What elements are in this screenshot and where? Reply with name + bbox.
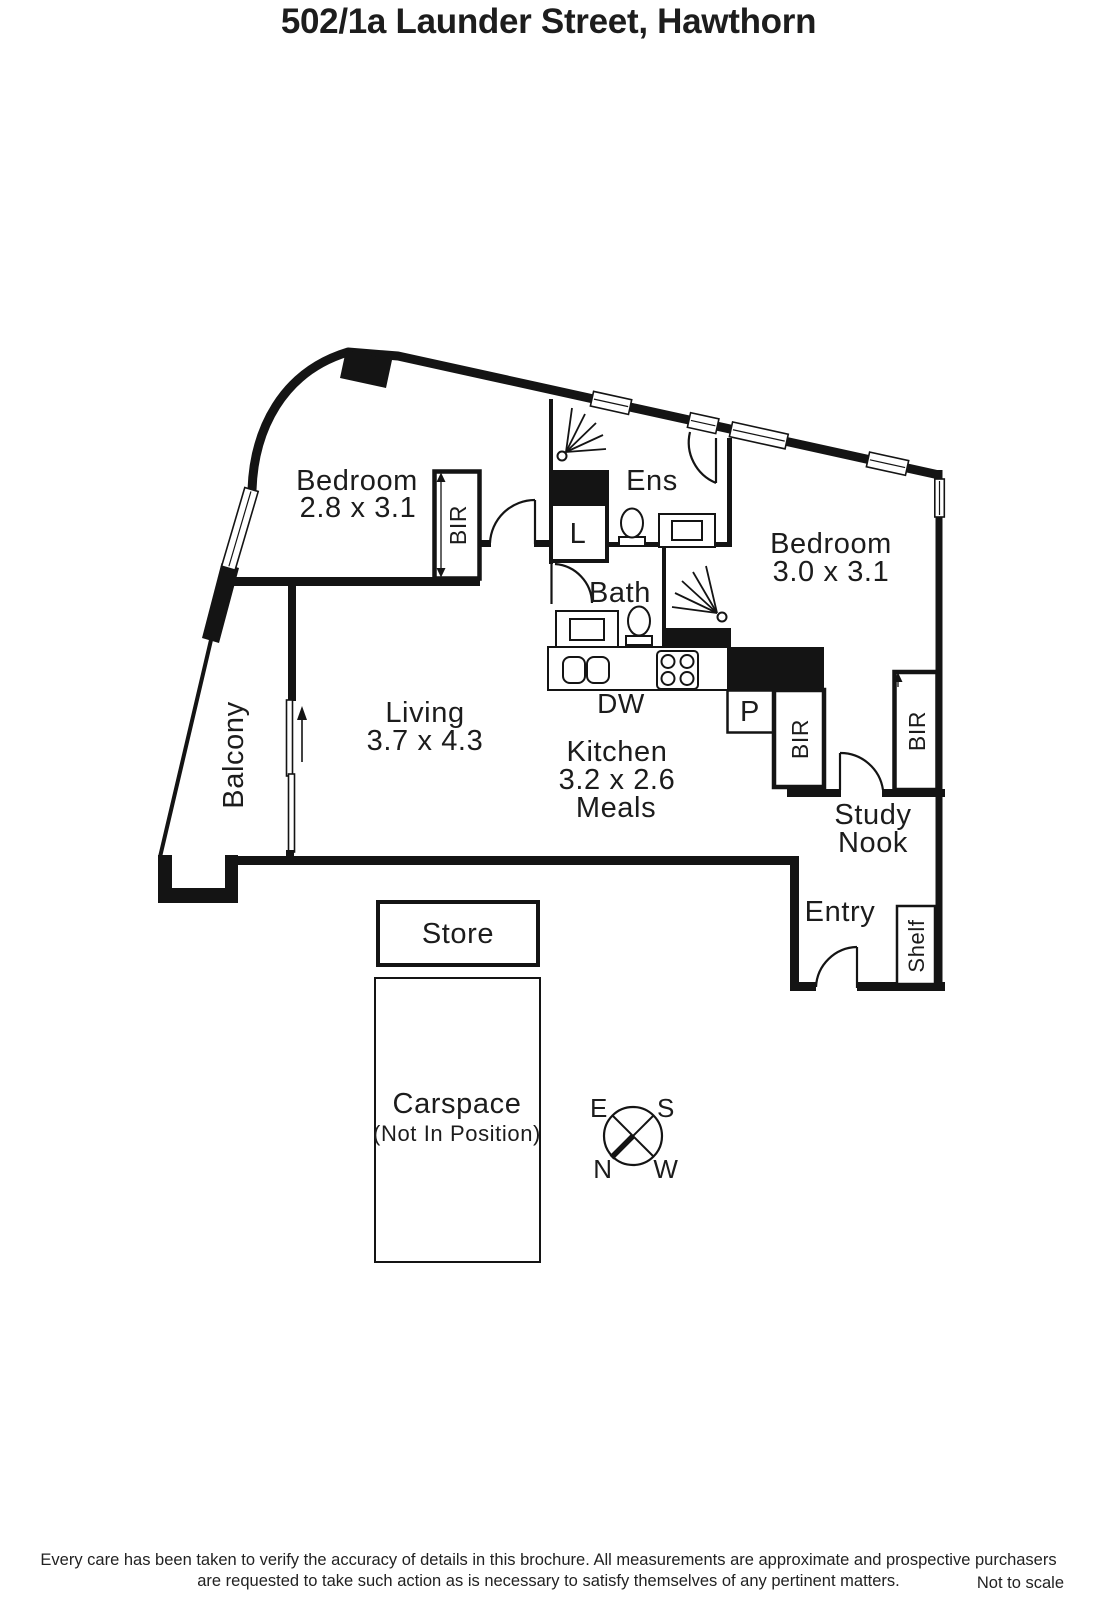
- balcony-corner-notch: [172, 855, 225, 888]
- window-top-3: [729, 422, 788, 449]
- wall-block-bath-shower: [662, 628, 731, 649]
- sink-left-icon: [563, 657, 585, 683]
- balcony-rail: [160, 640, 211, 857]
- label-living-dims: 3.7 x 4.3: [367, 725, 484, 757]
- slide-arrow-head: [297, 706, 307, 720]
- floorplan-page: 502/1a Launder Street, Hawthorn: [0, 0, 1097, 1600]
- wall-bottom-living: [236, 856, 799, 865]
- kitchen-bench: [548, 647, 728, 690]
- wall-laundry-right: [605, 506, 609, 563]
- window-top-4: [866, 452, 908, 475]
- label-ensuite: Ens: [626, 465, 678, 497]
- compass-north-pointer: [612, 1136, 634, 1158]
- door-ensuite: [689, 432, 716, 483]
- bath-toilet-icon: [626, 607, 652, 646]
- ensuite-toilet-icon: [619, 509, 645, 547]
- wall-block-under-shower: [549, 470, 609, 506]
- disclaimer: Every care has been taken to verify the …: [0, 1550, 1097, 1592]
- compass-north-label: N: [593, 1154, 612, 1184]
- label-pantry: P: [740, 696, 760, 728]
- sliding-door-balcony: [286, 700, 307, 858]
- label-bath: Bath: [589, 577, 651, 609]
- label-bir3: BIR: [904, 711, 930, 751]
- room-labels: Bedroom 2.8 x 3.1 Bedroom 3.0 x 3.1 Livi…: [218, 465, 930, 1146]
- label-bir1: BIR: [445, 505, 471, 545]
- door-bath: [552, 564, 593, 604]
- wall-studynook-top-left: [787, 789, 841, 797]
- wall-ens-shower-left: [549, 399, 553, 471]
- window-top-1: [590, 391, 631, 414]
- door-jamb-bedroom1-right: [534, 540, 551, 547]
- sliding-door-jamb: [286, 850, 294, 858]
- bath-vanity-icon: [556, 611, 618, 648]
- ensuite-vanity-icon: [659, 514, 715, 547]
- label-study-nook-2: Nook: [838, 827, 908, 859]
- label-bir2: BIR: [787, 719, 813, 759]
- label-carspace: Carspace: [393, 1088, 522, 1120]
- label-entry: Entry: [805, 896, 876, 928]
- wall-laundry-left: [549, 506, 553, 564]
- compass-east-label: E: [590, 1093, 608, 1123]
- compass-south-label: S: [657, 1093, 675, 1123]
- bath-shower-icon: [672, 566, 727, 622]
- window-top-2: [687, 413, 719, 434]
- label-bedroom2-dims: 3.0 x 3.1: [773, 556, 890, 588]
- label-laundry: L: [570, 518, 587, 550]
- door-bedroom2: [840, 753, 883, 790]
- wall-entry-left: [790, 856, 799, 991]
- label-balcony: Balcony: [218, 701, 250, 808]
- ensuite-shower-icon: [558, 408, 607, 461]
- floor-plan: E S N W Bedroom 2.8 x 3.1 Bedroom 3.0 x …: [0, 0, 1097, 1600]
- door-entry: [816, 947, 857, 988]
- cooktop-icon: [657, 651, 698, 689]
- scale-note: Not to scale: [977, 1574, 1064, 1593]
- sink-right-icon: [587, 657, 609, 683]
- wall-bath-shower-left: [662, 547, 666, 630]
- disclaimer-line1: Every care has been taken to verify the …: [0, 1550, 1097, 1571]
- label-dishwasher: DW: [597, 688, 645, 719]
- compass-west-label: W: [653, 1154, 678, 1184]
- compass-axis-s: [633, 1116, 654, 1137]
- door-bedroom1: [490, 500, 535, 544]
- window-balcony: [222, 488, 259, 571]
- wall-laundry-bottom: [549, 559, 609, 563]
- wall-entry-bottom-left: [790, 982, 816, 991]
- wall-balcony-divider: [288, 579, 296, 701]
- label-bedroom1-dims: 2.8 x 3.1: [300, 492, 417, 524]
- window-right-wall: [935, 479, 945, 517]
- label-kitchen-meals: Meals: [576, 792, 656, 824]
- carspace-box: [375, 978, 540, 1262]
- label-carspace-note: (Not In Position): [373, 1121, 541, 1146]
- label-shelf: Shelf: [904, 919, 929, 972]
- disclaimer-line2: are requested to take such action as is …: [0, 1571, 1097, 1592]
- wall-block-kitchen-right: [727, 647, 824, 690]
- label-store: Store: [422, 918, 494, 950]
- compass-rose: E S N W: [590, 1093, 679, 1184]
- wall-left-segment: [202, 563, 239, 643]
- wall-ens-bedroom2-divider: [727, 438, 732, 547]
